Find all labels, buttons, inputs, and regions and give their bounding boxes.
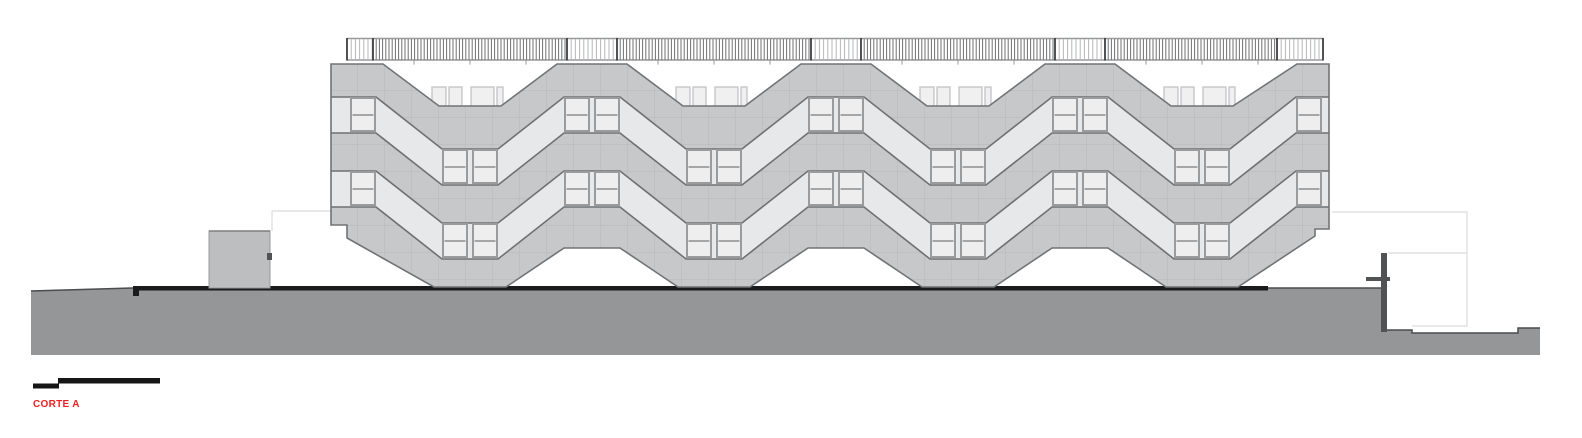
railing-post	[1054, 38, 1056, 61]
rooftop-panel	[471, 87, 494, 107]
rooftop-panel	[985, 87, 991, 107]
railing-post	[1322, 38, 1324, 61]
railing-post	[1104, 38, 1106, 61]
utility-box-latch	[267, 253, 272, 260]
drawing-canvas	[0, 0, 1582, 438]
railing-post	[372, 38, 374, 61]
rooftop-panel	[1203, 87, 1226, 107]
roof-railing	[346, 38, 1324, 65]
rooftop-panel	[693, 87, 706, 107]
rooftop-panel	[1181, 87, 1194, 107]
rooftop-panel	[741, 87, 747, 107]
ground	[31, 288, 1540, 355]
rooftop-panel	[959, 87, 982, 107]
scale-bar	[33, 378, 160, 389]
scale-bar-upper-segment	[58, 378, 160, 384]
railing-post	[1276, 38, 1278, 61]
pavement-nib	[133, 289, 139, 296]
rooftop-panel	[715, 87, 738, 107]
railing-post	[346, 38, 348, 61]
rooftop-panel	[449, 87, 462, 107]
rooftop-panel	[937, 87, 950, 107]
section-drawing: CORTE A	[0, 0, 1582, 438]
retaining-wall-rail	[1366, 277, 1390, 281]
rooftop-panel	[497, 87, 503, 107]
retaining-wall-post	[1381, 253, 1387, 332]
ground-mass	[31, 288, 1540, 355]
railing-post	[566, 38, 568, 61]
railing-post	[616, 38, 618, 61]
rooftop-panel	[1229, 87, 1235, 107]
annex-outline	[272, 211, 333, 231]
scale-bar-lower-segment	[33, 384, 59, 389]
railing-pickets-back	[347, 39, 1319, 60]
railing-post	[810, 38, 812, 61]
utility-box-body	[209, 231, 270, 288]
utility-box	[209, 231, 272, 288]
section-label: CORTE A	[33, 399, 80, 410]
railing-post	[860, 38, 862, 61]
